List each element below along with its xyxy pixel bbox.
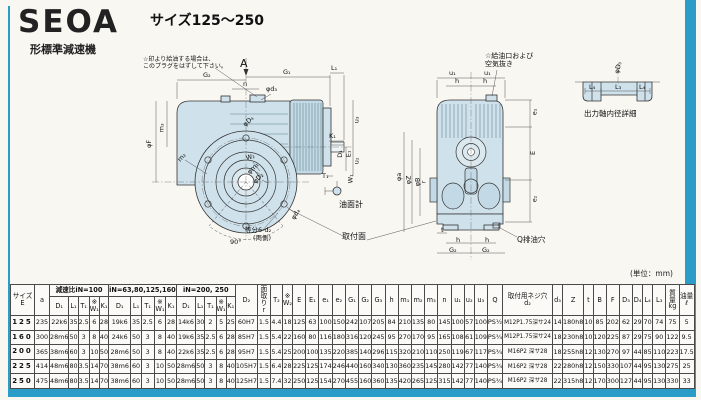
value-cell: 25 [226, 316, 235, 331]
table-row: 25047548m6803.5147038m6603105028m6503840… [11, 374, 695, 389]
column-subheader: D₁ [109, 297, 131, 316]
value-cell: 80 [425, 316, 438, 331]
value-cell: 10 [89, 345, 99, 360]
value-cell: 1.5 [257, 330, 270, 345]
value-cell: 75 [666, 316, 679, 331]
value-cell: 38m6 [50, 345, 69, 360]
value-cell: M12P1.75深サ24 [503, 316, 553, 331]
value-cell: 210 [411, 345, 424, 360]
value-cell: 80 [306, 330, 319, 345]
value-cell: 95 [385, 330, 398, 345]
value-cell: 246 [332, 359, 345, 374]
value-cell: 17.5 [679, 345, 694, 360]
page-border-bottom [8, 388, 696, 397]
value-cell: 63 [306, 316, 319, 331]
value-cell: 109 [474, 330, 487, 345]
value-cell: 6 [154, 316, 166, 331]
value-cell: 5.4 [270, 330, 282, 345]
dim-dd3: φD₃ [614, 61, 625, 75]
value-cell: 62 [619, 316, 632, 331]
value-cell: 280 [438, 359, 451, 374]
column-header: u₂ [464, 285, 474, 316]
size-cell: 160 [11, 330, 35, 345]
column-header: 油量 ℓ [679, 285, 694, 316]
column-subheader: L₁ [196, 297, 205, 316]
value-cell: 18 [553, 345, 563, 360]
dim-r: r [420, 181, 428, 184]
value-cell: 116 [319, 330, 332, 345]
column-header: 面取り r [257, 285, 270, 316]
dim-l3: L₃ [615, 84, 621, 92]
value-cell: 48m6 [50, 374, 69, 389]
value-cell: 3.5 [78, 374, 89, 389]
value-cell: 40 [99, 330, 108, 345]
value-cell: 300 [606, 374, 619, 389]
value-cell: 60 [131, 374, 141, 389]
size-cell: 125 [11, 316, 35, 331]
value-cell: 70 [99, 374, 108, 389]
column-subheader: T₁ [78, 297, 89, 316]
value-cell: 455 [345, 374, 358, 389]
value-cell: 84 [385, 316, 398, 331]
value-cell: 8 [216, 359, 226, 374]
value-cell: 1.5 [257, 345, 270, 360]
value-cell: 80 [69, 374, 78, 389]
value-cell: 95 [425, 330, 438, 345]
column-subheader: T₁ [141, 297, 154, 316]
table-body: 12523522k6352.562819k6352.562814k6302525… [11, 316, 695, 389]
dim-w1: W₁ [348, 174, 356, 183]
dim-f: φF [146, 140, 154, 148]
value-cell: 1.5 [257, 374, 270, 389]
section-mark-a: A [240, 57, 248, 70]
column-header: B [593, 285, 606, 316]
value-cell: 3.5 [78, 359, 89, 374]
value-cell: 140 [474, 359, 487, 374]
size-cell: 250 [11, 374, 35, 389]
value-cell: 28 [282, 359, 292, 374]
value-cell: 270 [606, 345, 619, 360]
value-cell: 3 [78, 330, 89, 345]
value-cell: 14k6 [176, 316, 195, 331]
dim-a: φa [396, 173, 404, 181]
value-cell: 414 [35, 359, 50, 374]
value-cell: 50 [131, 345, 141, 360]
value-cell: 145 [425, 359, 438, 374]
value-cell: 250 [438, 345, 451, 360]
value-cell: 125 [425, 374, 438, 389]
value-cell: 60 [131, 359, 141, 374]
column-header: m₂ [411, 285, 424, 316]
value-cell: 10 [584, 330, 593, 345]
value-cell: 35 [196, 330, 205, 345]
value-cell: 6 [89, 316, 99, 331]
dim-g2-front: G₂ [203, 72, 211, 80]
value-cell: 125 [293, 316, 306, 331]
value-cell: 25 [679, 359, 694, 374]
dim-h-bot-b: h [485, 237, 489, 245]
value-cell: M12P1.75深サ24 [503, 330, 553, 345]
value-cell: 95 [643, 374, 653, 389]
value-cell: 12 [584, 359, 593, 374]
value-cell: 225 [293, 359, 306, 374]
value-cell: 255h8 [563, 345, 584, 360]
dim-u2: u₂ [353, 158, 361, 165]
value-cell: 170 [411, 330, 424, 345]
size-cell: 200 [11, 345, 35, 360]
value-cell: 8 [154, 345, 166, 360]
table-row: 12523522k6352.562819k6352.562814k6302525… [11, 316, 695, 331]
value-cell: 205 [372, 316, 385, 331]
value-cell: 70 [99, 359, 108, 374]
value-cell: 142 [451, 374, 464, 389]
column-header: m₁ [398, 285, 411, 316]
value-cell: 50 [69, 330, 78, 345]
value-cell: 48m6 [50, 359, 69, 374]
column-header: e₂ [332, 285, 345, 316]
value-cell: 40 [166, 345, 177, 360]
value-cell: 127 [619, 374, 632, 389]
value-cell: 135 [385, 374, 398, 389]
column-header: D₄ [633, 285, 643, 316]
value-cell: 150 [593, 359, 606, 374]
value-cell: M16P2 深サ28 [503, 374, 553, 389]
value-cell: 280h8 [563, 359, 584, 374]
oil-gauge-label: 油面計 [339, 200, 363, 210]
dim-e: E [530, 151, 538, 155]
column-subheader: K₁ [166, 297, 177, 316]
column-header: G₂ [359, 285, 372, 316]
value-cell: 19k6 [109, 316, 131, 331]
value-cell: 97 [619, 345, 632, 360]
value-cell: 202 [606, 316, 619, 331]
value-cell: M16P2 深サ28 [503, 359, 553, 374]
value-cell: PS¾ [487, 374, 502, 389]
value-cell: 135 [319, 345, 332, 360]
value-cell: 385 [345, 345, 358, 360]
value-cell: 125H7 [235, 374, 257, 389]
column-header: F [606, 285, 619, 316]
value-cell: 44 [633, 345, 643, 360]
value-cell: 265 [411, 374, 424, 389]
dim-u3: u₃ [353, 117, 361, 124]
value-cell: 22 [553, 359, 563, 374]
column-header: e₁ [319, 285, 332, 316]
value-cell: 140 [474, 374, 487, 389]
value-cell: 105H7 [235, 359, 257, 374]
value-cell: 110 [425, 345, 438, 360]
value-cell: 130 [593, 345, 606, 360]
table-header: サイズ Ea減速比iN=100iN=63,80,125,160iN=200, 2… [11, 285, 695, 316]
value-cell: 28 [166, 316, 177, 331]
value-cell: 61 [464, 330, 474, 345]
value-cell: 420 [398, 374, 411, 389]
dim-z: φZ [405, 176, 413, 185]
value-cell: 50 [196, 374, 205, 389]
value-cell: 100 [319, 316, 332, 331]
value-cell: 8 [154, 330, 166, 345]
value-cell: 5.4 [270, 345, 282, 360]
value-cell: 160 [359, 359, 372, 374]
dim-t: t [441, 227, 444, 235]
column-subheader: ※ W₁ [216, 297, 226, 316]
value-cell: 85 [593, 316, 606, 331]
value-cell: 25 [282, 345, 292, 360]
column-header: t [584, 285, 593, 316]
value-cell: 8 [216, 374, 226, 389]
value-cell: 1.5 [257, 316, 270, 331]
column-header: サイズ E [11, 285, 35, 316]
value-cell: 122 [666, 330, 679, 345]
bore-detail-caption: 出力軸内径詳細 [584, 109, 637, 118]
value-cell: 6 [216, 330, 226, 345]
drawing-labels: ☆印より給油する場合は、 このプラグをはずして下さい。AG₂G₁L₁nφd₃φD… [0, 0, 701, 282]
dim-l1: L₁ [331, 65, 337, 73]
value-cell: 316 [345, 330, 358, 345]
table-row: 20036538m6603105028m650384022k6352.56289… [11, 345, 695, 360]
column-header: E₁ [306, 285, 319, 316]
column-header: D₂ [235, 285, 257, 316]
size-cell: 225 [11, 359, 35, 374]
value-cell: 28m6 [50, 330, 69, 345]
dim-k1: K₁ [329, 133, 336, 141]
value-cell: 50 [131, 330, 141, 345]
angle-90: 90° [230, 239, 242, 247]
value-cell: 440 [345, 359, 358, 374]
value-cell: 330 [606, 359, 619, 374]
value-cell: 4.4 [270, 316, 282, 331]
column-header: d₃ [553, 285, 563, 316]
column-header: n [438, 285, 451, 316]
value-cell: 170 [593, 374, 606, 389]
value-cell: 95 [643, 359, 653, 374]
value-cell: 50 [196, 359, 205, 374]
value-cell: 10 [154, 374, 166, 389]
value-cell: 210 [398, 316, 411, 331]
oil-fill-note: ☆印より給油する場合は、 このプラグをはずして下さい。 [143, 56, 227, 70]
column-header: iN=63,80,125,160 [109, 285, 177, 297]
table-row: 22541448m6803.5147038m6603105028m6503840… [11, 359, 695, 374]
value-cell: 80 [69, 359, 78, 374]
value-cell: 100 [451, 316, 464, 331]
value-cell: 74 [653, 316, 666, 331]
value-cell: 29 [633, 330, 643, 345]
value-cell: 18 [282, 316, 292, 331]
value-cell: 28 [226, 345, 235, 360]
dim-dd2: φD₂ [252, 172, 266, 186]
dim-n: n [243, 81, 247, 89]
value-cell: 360 [372, 374, 385, 389]
value-cell: 57 [464, 316, 474, 331]
value-cell: 75 [643, 330, 653, 345]
value-cell: 10 [584, 316, 593, 331]
mounting-face-label: 取付面 [342, 232, 366, 242]
value-cell: 235 [35, 316, 50, 331]
value-cell: 475 [35, 374, 50, 389]
value-cell: 250 [293, 374, 306, 389]
value-cell: 38m6 [109, 359, 131, 374]
value-cell: 107 [619, 359, 632, 374]
column-header: L₄ [643, 285, 653, 316]
value-cell: 5 [679, 316, 694, 331]
value-cell: 242 [345, 316, 358, 331]
value-cell: 2.5 [205, 345, 216, 360]
dimensions-table: サイズ Ea減速比iN=100iN=63,80,125,160iN=200, 2… [10, 284, 695, 389]
value-cell: PS¾ [487, 330, 502, 345]
dim-l4b: L₄ [639, 84, 645, 92]
column-header: D₃ [619, 285, 632, 316]
value-cell: 225 [606, 330, 619, 345]
value-cell: 18 [553, 330, 563, 345]
value-cell: 6.4 [270, 359, 282, 374]
value-cell: 5 [216, 316, 226, 331]
column-header: 減速比iN=100 [50, 285, 109, 297]
value-cell: 150 [332, 316, 345, 331]
value-cell: 2.5 [141, 316, 154, 331]
value-cell: 125 [306, 359, 319, 374]
column-header: T₂ [270, 285, 282, 316]
value-cell: 29 [633, 316, 643, 331]
value-cell: 8 [89, 330, 99, 345]
value-cell: 296 [372, 345, 385, 360]
value-cell: 28 [226, 330, 235, 345]
value-cell: 180 [332, 330, 345, 345]
value-cell: 28m6 [109, 345, 131, 360]
value-cell: 19k6 [176, 330, 195, 345]
value-cell: 12 [584, 374, 593, 389]
value-cell: 33 [679, 374, 694, 389]
column-header: Z [563, 285, 584, 316]
value-cell: 142 [451, 359, 464, 374]
value-cell: 330 [666, 374, 679, 389]
value-cell: 28m6 [176, 359, 195, 374]
dim-m3: m₃ [159, 123, 167, 132]
column-subheader: D₁ [50, 297, 69, 316]
dim-g2a: G₂ [449, 247, 457, 255]
value-cell: 22 [553, 374, 563, 389]
value-cell: 28 [99, 316, 108, 331]
value-cell: 90 [653, 330, 666, 345]
value-cell: 28m6 [176, 374, 195, 389]
value-cell: 110 [653, 345, 666, 360]
value-cell: 14 [89, 374, 99, 389]
column-header: E [293, 285, 306, 316]
value-cell: 120 [593, 330, 606, 345]
column-subheader: L₁ [131, 297, 141, 316]
value-cell: 119 [451, 345, 464, 360]
value-cell: 340 [372, 359, 385, 374]
value-cell: 230h8 [563, 330, 584, 345]
dim-l4a: L₄ [589, 84, 595, 92]
value-cell: 85 [643, 345, 653, 360]
dim-g2b: G₂ [482, 247, 490, 255]
value-cell: 87 [619, 330, 632, 345]
dim-d4: φd₄ [290, 208, 302, 221]
value-cell: PS½ [487, 316, 502, 331]
value-cell: 140 [359, 345, 372, 360]
value-cell: 3 [141, 330, 154, 345]
catalog-page: SEOA 形標準減速機 サイズ125～250 (単位：mm) [0, 0, 701, 400]
column-subheader: ※ W₁ [154, 297, 166, 316]
value-cell: 3 [205, 374, 216, 389]
value-cell: 35 [131, 316, 141, 331]
column-header: m₃ [425, 285, 438, 316]
air-vent-note: ☆給油口および 空気抜き [485, 52, 533, 69]
dim-e1-front: E₁ [345, 151, 353, 158]
value-cell: 32 [282, 374, 292, 389]
value-cell: PS¾ [487, 345, 502, 360]
column-header: 質量 kg [666, 285, 679, 316]
column-header: h [385, 285, 398, 316]
value-cell: 50 [99, 345, 108, 360]
dim-dd4: φD₄ [242, 115, 256, 129]
value-cell: 30 [196, 316, 205, 331]
value-cell: 270 [332, 374, 345, 389]
value-cell: 315 [438, 374, 451, 389]
value-cell: 115 [385, 345, 398, 360]
value-cell: 77 [464, 374, 474, 389]
column-subheader: K₁ [99, 297, 108, 316]
table-row: 16030028m650384024k650384019k6352.562885… [11, 330, 695, 345]
column-subheader: L₁ [69, 297, 78, 316]
value-cell: 120 [359, 330, 372, 345]
value-cell: 100 [474, 316, 487, 331]
value-cell: 40 [226, 359, 235, 374]
value-cell: 135 [411, 316, 424, 331]
value-cell: 154 [319, 374, 332, 389]
value-cell: 223 [666, 345, 679, 360]
column-header: 取付用ネジ穴 d₂ [503, 285, 553, 316]
value-cell: 3 [141, 359, 154, 374]
value-cell: 38m6 [109, 374, 131, 389]
value-cell: 77 [464, 359, 474, 374]
column-header: a [35, 285, 50, 316]
value-cell: 320 [398, 345, 411, 360]
column-header: L₃ [653, 285, 666, 316]
value-cell: 10 [154, 359, 166, 374]
value-cell: 130 [653, 359, 666, 374]
dim-t1: T₁ [322, 173, 329, 181]
value-cell: 60 [69, 345, 78, 360]
value-cell: 174 [319, 359, 332, 374]
value-cell: 235 [411, 359, 424, 374]
value-cell: 117 [474, 345, 487, 360]
value-cell: 14 [89, 359, 99, 374]
column-header: u₁ [451, 285, 464, 316]
value-cell: 6 [216, 345, 226, 360]
column-header: ※ W₂ [282, 285, 292, 316]
value-cell: 50 [166, 374, 177, 389]
value-cell: 2.5 [78, 316, 89, 331]
value-cell: 200 [293, 345, 306, 360]
dim-h-bot-a: h [456, 237, 460, 245]
value-cell: 2 [205, 316, 216, 331]
value-cell: 3 [78, 345, 89, 360]
dim-h-top-a: h [455, 78, 459, 86]
value-cell: 275 [666, 359, 679, 374]
value-cell: 130 [653, 374, 666, 389]
value-cell: 3 [141, 345, 154, 360]
value-cell: 3 [141, 374, 154, 389]
value-cell: 160 [359, 374, 372, 389]
value-cell: 9.5 [679, 330, 694, 345]
value-cell: 14 [553, 316, 563, 331]
value-cell: 365 [35, 345, 50, 360]
value-cell: 220 [332, 345, 345, 360]
value-cell: 44 [633, 374, 643, 389]
value-cell: 145 [438, 316, 451, 331]
value-cell: 40 [226, 374, 235, 389]
